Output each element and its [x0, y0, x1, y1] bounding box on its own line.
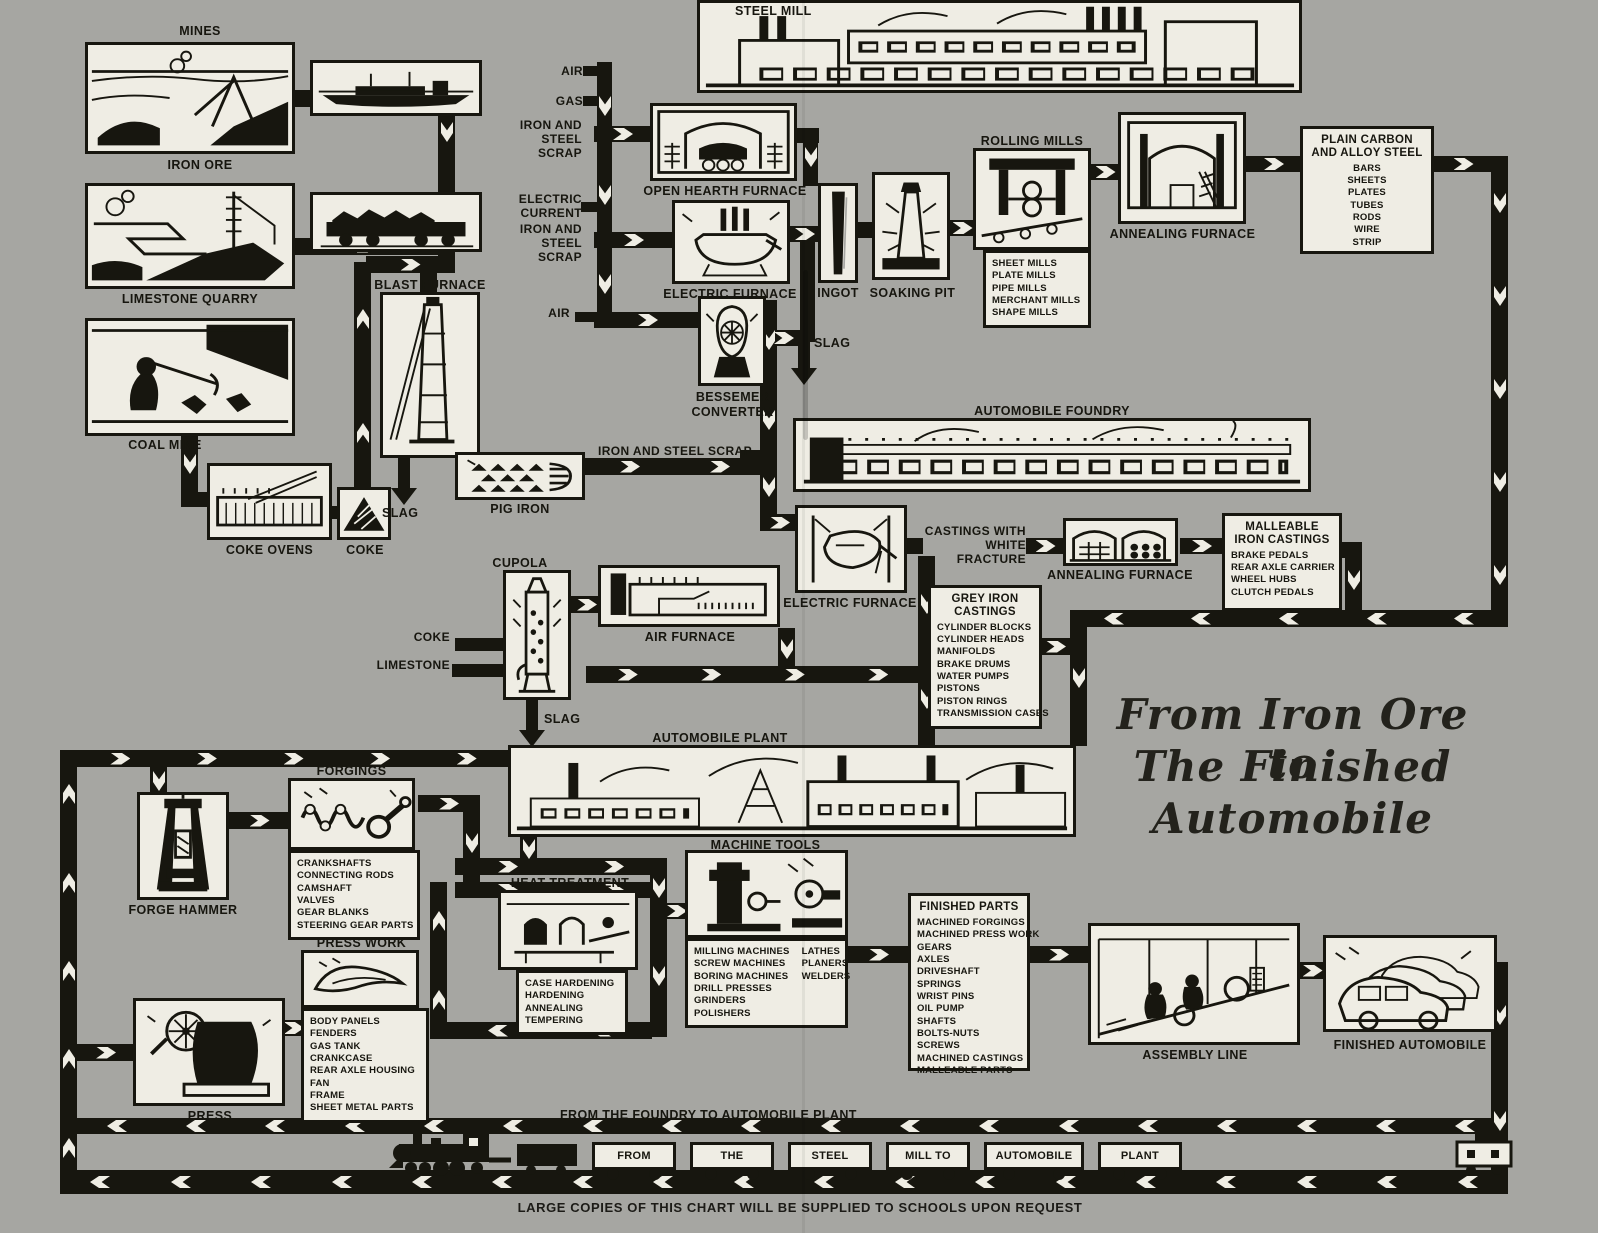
list-item: BRAKE PEDALS [1231, 550, 1333, 562]
list-item: LATHES [802, 946, 851, 958]
cupola-illustration [503, 570, 571, 700]
machine-tools-list: MILLING MACHINESSCREW MACHINESBORING MAC… [685, 938, 848, 1028]
list-item: CYLINDER HEADS [937, 634, 1033, 646]
flow-pipe [575, 312, 596, 322]
soaking-pit-illustration [872, 172, 950, 280]
train-car-from: FROM [592, 1142, 676, 1170]
bessemer-converter-illustration [698, 296, 766, 386]
list-item: PLATE MILLS [992, 270, 1082, 282]
list-item: CAMSHAFT [297, 883, 411, 895]
assembly-line-illustration [1088, 923, 1300, 1045]
iron-ore-to-automobile-flowchart: MINES IRON ORE LIMESTONE QUARRY COAL MIN… [0, 0, 1598, 1233]
iron-ore-mine-illustration [85, 42, 295, 154]
rolling-mills-illustration [973, 148, 1091, 250]
list-item: CRANKSHAFTS [297, 858, 411, 870]
rolling-mills-label: ROLLING MILLS [973, 134, 1091, 149]
list-item: SPRINGS [917, 979, 1021, 991]
annealing-furnace-foundry-illustration [1063, 518, 1178, 566]
air-furnace-label: AIR FURNACE [600, 630, 780, 645]
grey-iron-title: GREY IRON CASTINGS [937, 593, 1033, 619]
ingot-illustration [818, 183, 858, 283]
soaking-pit-label: SOAKING PIT [860, 286, 965, 301]
list-item: REAR AXLE HOUSING [310, 1065, 420, 1077]
train-wheel-icon [1113, 1168, 1125, 1180]
list-item: SHAPE MILLS [992, 307, 1082, 319]
slag-ingot-label: SLAG [814, 336, 874, 351]
bessemer-converter-label: BESSEMER CONVERTER [660, 390, 805, 420]
coke-label: COKE [325, 543, 405, 558]
list-item: WELDERS [802, 971, 851, 983]
list-item: ANNEALING [525, 1003, 619, 1015]
list-item: AXLES [917, 954, 1021, 966]
list-item: BODY PANELS [310, 1016, 420, 1028]
list-item: VALVES [297, 895, 411, 907]
flow-pipe [60, 1170, 1508, 1194]
ore-train-car-illustration [310, 192, 482, 252]
list-item: SCREW MACHINES [694, 958, 790, 970]
assembly-line-label: ASSEMBLY LINE [1090, 1048, 1300, 1063]
list-item: PISTON RINGS [937, 696, 1033, 708]
list-item: CRANKCASE [310, 1053, 420, 1065]
flow-pipe [583, 66, 599, 76]
locomotive-illustration [385, 1126, 515, 1176]
list-item: MANIFOLDS [937, 646, 1033, 658]
train-wheel-icon [943, 1168, 955, 1180]
list-item: POLISHERS [694, 1008, 790, 1020]
electric-furnace-foundry-label: ELECTRIC FURNACE [775, 596, 925, 611]
list-item: BORING MACHINES [694, 971, 790, 983]
machine-tools-illustration [685, 850, 848, 938]
slag-arrow [526, 700, 538, 730]
list-item: STEERING GEAR PARTS [297, 920, 411, 932]
list-item: MACHINED PRESS WORK [917, 929, 1021, 941]
tender-illustration [515, 1140, 579, 1176]
list-item: FAN [310, 1078, 420, 1090]
cupola-label: CUPOLA [470, 556, 570, 571]
flow-pipe [583, 96, 599, 106]
coke-cupola-label: COKE [378, 630, 450, 644]
flow-pipe [354, 262, 371, 490]
press-work-list: BODY PANELSFENDERSGAS TANKCRANKCASEREAR … [301, 1008, 429, 1123]
list-item: REAR AXLE CARRIER [1231, 562, 1333, 574]
list-item: CONNECTING RODS [297, 870, 411, 882]
finished-automobile-label: FINISHED AUTOMOBILE [1300, 1038, 1520, 1053]
train-wheel-icon [705, 1168, 717, 1180]
air-label-openhearth: AIR [525, 64, 583, 78]
limestone-quarry-label: LIMESTONE QUARRY [110, 292, 270, 307]
coke-ovens-label: COKE OVENS [207, 543, 332, 558]
coal-mine-label: COAL MINE [95, 438, 235, 453]
caboose-illustration [1455, 1132, 1513, 1176]
blast-furnace-label: BLAST FURNACE [370, 278, 490, 293]
pig-iron-illustration [455, 452, 585, 500]
list-item: CYLINDER BLOCKS [937, 622, 1033, 634]
coal-mine-illustration [85, 318, 295, 436]
flow-pipe [430, 882, 447, 1039]
automobile-foundry-illustration [793, 418, 1311, 492]
list-item: SCREWS [917, 1040, 1021, 1052]
scrap-label-electric: IRON AND STEEL SCRAP [496, 222, 582, 264]
train-wheel-icon [747, 1168, 759, 1180]
list-item: WIRE [1309, 224, 1425, 236]
list-item: BOLTS-NUTS [917, 1028, 1021, 1040]
press-label: PRESS [135, 1109, 285, 1124]
slag-cupola-label: SLAG [544, 712, 604, 727]
electric-furnace-steel-label: ELECTRIC FURNACE [660, 287, 800, 302]
annealing-furnace-steel-illustration [1118, 112, 1246, 224]
mines-label: MINES [130, 24, 270, 39]
list-item: HARDENING [525, 990, 619, 1002]
plain-carbon-alloy-steel-box: PLAIN CARBON AND ALLOY STEEL BARSSHEETSP… [1300, 126, 1434, 254]
list-item: MERCHANT MILLS [992, 295, 1082, 307]
scrap-label-mid: IRON AND STEEL SCRAP [598, 444, 778, 458]
slag-blast-label: SLAG [382, 506, 442, 521]
press-illustration [133, 998, 285, 1106]
train-car-mill-to: MILL TO [886, 1142, 970, 1170]
forge-hammer-illustration [137, 792, 229, 900]
open-hearth-furnace-illustration [650, 103, 797, 181]
grey-iron-castings-box: GREY IRON CASTINGS CYLINDER BLOCKSCYLIND… [928, 585, 1042, 729]
train-car-steel: STEEL [788, 1142, 872, 1170]
list-item: GRINDERS [694, 995, 790, 1007]
list-item: PLANERS [802, 958, 851, 970]
limestone-quarry-illustration [85, 183, 295, 289]
ore-ship-illustration [310, 60, 482, 116]
malleable-iron-castings-box: MALLEABLE IRON CASTINGS BRAKE PEDALSREAR… [1222, 513, 1342, 611]
press-work-illustration [301, 950, 419, 1008]
annealing-furnace-foundry-label: ANNEALING FURNACE [1040, 568, 1200, 583]
iron-ore-label: IRON ORE [130, 158, 270, 173]
finished-parts-box: FINISHED PARTS MACHINED FORGINGSMACHINED… [908, 893, 1030, 1071]
list-item: MACHINED CASTINGS [917, 1053, 1021, 1065]
automobile-plant-illustration [508, 745, 1076, 837]
heat-treatment-label: HEAT TREATMENT [495, 876, 645, 891]
blast-furnace-illustration [380, 292, 480, 458]
heat-treatment-list: CASE HARDENINGHARDENINGANNEALINGTEMPERIN… [516, 970, 628, 1035]
forgings-list: CRANKSHAFTSCONNECTING RODSCAMSHAFTVALVES… [288, 850, 420, 940]
list-item: CLUTCH PEDALS [1231, 587, 1333, 599]
train-car-the: THE [690, 1142, 774, 1170]
limestone-cupola-label: LIMESTONE [356, 658, 450, 672]
footer-caption: LARGE COPIES OF THIS CHART WILL BE SUPPL… [400, 1200, 1200, 1215]
scrap-label-openhearth: IRON AND STEEL SCRAP [496, 118, 582, 160]
automobile-foundry-label: AUTOMOBILE FOUNDRY [902, 404, 1202, 419]
list-item: RODS [1309, 212, 1425, 224]
rolling-mill-types-list: SHEET MILLSPLATE MILLSPIPE MILLSMERCHANT… [983, 250, 1091, 328]
train-car-automobile: AUTOMOBILE [984, 1142, 1084, 1170]
list-item: PIPE MILLS [992, 283, 1082, 295]
train-wheel-icon [1053, 1168, 1065, 1180]
forge-hammer-label: FORGE HAMMER [118, 903, 248, 918]
page-title-line2: The Finished [1095, 742, 1490, 791]
list-item: MALLEABLE PARTS [917, 1065, 1021, 1077]
finished-parts-title: FINISHED PARTS [917, 901, 1021, 914]
slag-arrowhead-icon [391, 488, 417, 505]
slag-arrow [398, 458, 410, 488]
heat-treatment-illustration [498, 890, 638, 970]
train-wheel-icon [1155, 1168, 1167, 1180]
list-item: SHAFTS [917, 1016, 1021, 1028]
list-item: SHEET METAL PARTS [310, 1102, 420, 1114]
train-wheel-icon [901, 1168, 913, 1180]
finished-automobile-illustration [1323, 935, 1497, 1032]
machine-tools-label: MACHINE TOOLS [683, 838, 848, 853]
air-label-bessemer: AIR [518, 306, 570, 320]
list-item: OIL PUMP [917, 1003, 1021, 1015]
list-item: MACHINED FORGINGS [917, 917, 1021, 929]
slag-arrow [798, 342, 810, 368]
forgings-label: FORGINGS [288, 764, 415, 779]
air-furnace-illustration [598, 565, 780, 627]
foundry-to-plant-label: FROM THE FOUNDRY TO AUTOMOBILE PLANT [560, 1108, 980, 1123]
electric-furnace-steel-illustration [672, 200, 790, 284]
list-item: MILLING MACHINES [694, 946, 790, 958]
list-item: FENDERS [310, 1028, 420, 1040]
malleable-iron-title: MALLEABLE IRON CASTINGS [1231, 521, 1333, 547]
list-item: TRANSMISSION CASES [937, 708, 1033, 720]
list-item: FRAME [310, 1090, 420, 1102]
open-hearth-furnace-label: OPEN HEARTH FURNACE [640, 184, 810, 199]
page-title-line3: Automobile [1095, 794, 1490, 843]
train-car-plant: PLANT [1098, 1142, 1182, 1170]
list-item: WHEEL HUBS [1231, 574, 1333, 586]
list-item: GAS TANK [310, 1041, 420, 1053]
list-item: PISTONS [937, 683, 1033, 695]
list-item: SHEET MILLS [992, 258, 1082, 270]
flow-pipe [585, 458, 765, 475]
flow-pipe [455, 858, 667, 875]
plain-carbon-title: PLAIN CARBON AND ALLOY STEEL [1309, 134, 1425, 160]
coke-ovens-illustration [207, 463, 332, 540]
list-item: SHEETS [1309, 175, 1425, 187]
flow-pipe [452, 664, 505, 677]
train-wheel-icon [1003, 1168, 1015, 1180]
list-item: STRIP [1309, 237, 1425, 249]
list-item: GEAR BLANKS [297, 907, 411, 919]
electric-current-label: ELECTRIC CURRENT [510, 192, 582, 220]
flow-pipe [455, 638, 505, 651]
pig-iron-label: PIG IRON [455, 502, 585, 517]
steel-mill-label: STEEL MILL [735, 4, 855, 19]
list-item: WRIST PINS [917, 991, 1021, 1003]
automobile-plant-label: AUTOMOBILE PLANT [610, 731, 830, 746]
gas-label: GAS [525, 94, 583, 108]
train-wheel-icon [845, 1168, 857, 1180]
list-item: TUBES [1309, 200, 1425, 212]
list-item: BARS [1309, 163, 1425, 175]
list-item: DRIVESHAFT [917, 966, 1021, 978]
train-wheel-icon [607, 1168, 619, 1180]
list-item: GEARS [917, 942, 1021, 954]
list-item: WATER PUMPS [937, 671, 1033, 683]
annealing-furnace-steel-label: ANNEALING FURNACE [1105, 227, 1260, 242]
flow-pipe [581, 202, 599, 212]
list-item: CASE HARDENING [525, 978, 619, 990]
train-wheel-icon [649, 1168, 661, 1180]
list-item: PLATES [1309, 187, 1425, 199]
forgings-illustration [288, 778, 415, 850]
slag-arrowhead-icon [791, 368, 817, 385]
list-item: DRILL PRESSES [694, 983, 790, 995]
train-wheel-icon [803, 1168, 815, 1180]
electric-furnace-foundry-illustration [795, 505, 907, 593]
press-work-label: PRESS WORK [298, 936, 425, 951]
list-item: BRAKE DRUMS [937, 659, 1033, 671]
castings-white-fracture-label: CASTINGS WITH WHITE FRACTURE [918, 524, 1026, 566]
list-item: TEMPERING [525, 1015, 619, 1027]
